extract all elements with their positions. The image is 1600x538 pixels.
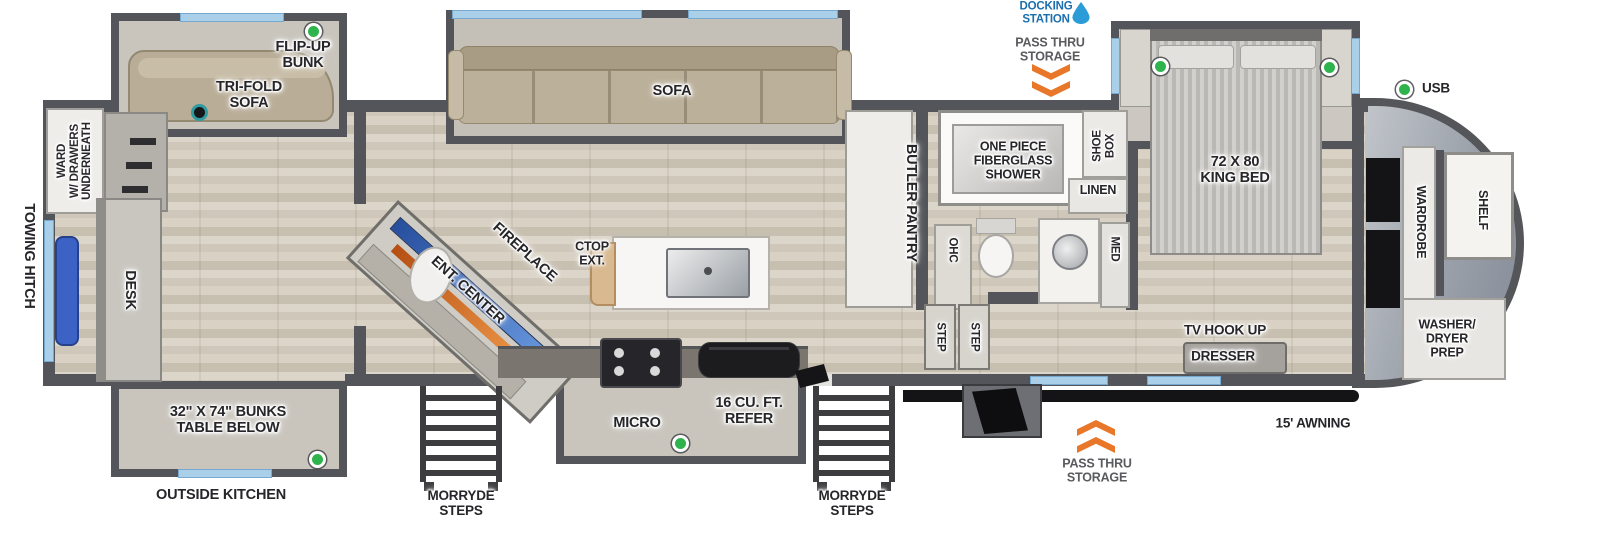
label-linen: LINEN (1080, 184, 1117, 198)
green-indicator-dot (305, 23, 322, 40)
window-strip (452, 10, 642, 19)
label-ctop-ext: CTOP EXT. (575, 240, 609, 268)
nightstand (1120, 29, 1152, 107)
label-usb: USB (1422, 82, 1450, 97)
label-awning: 15' AWNING (1276, 417, 1351, 432)
label-refer: 16 CU. FT. REFER (715, 396, 782, 428)
label-outside-kitchen: OUTSIDE KITCHEN (156, 488, 286, 504)
label-king-bed: 72 X 80 KING BED (1200, 155, 1269, 187)
label-dresser: DRESSER (1191, 350, 1255, 365)
burner (650, 366, 660, 376)
bath-sink (1052, 234, 1088, 270)
label-flip-up-bunk: FLIP-UP BUNK (276, 40, 331, 72)
wardrobe-opening (1366, 158, 1400, 222)
label-pass-thru-top: PASS THRU STORAGE (1015, 36, 1085, 64)
sofa-armrest (448, 50, 464, 120)
burner (650, 348, 660, 358)
shelf-slot (122, 186, 148, 193)
label-towing-hitch: TOWING HITCH (20, 203, 36, 308)
sofa-seat (458, 70, 840, 124)
label-washer-dryer-prep: WASHER/ DRYER PREP (1419, 318, 1476, 359)
window-strip (1147, 376, 1221, 385)
label-shelf: SHELF (1475, 190, 1489, 230)
label-shower: ONE PIECE FIBERGLASS SHOWER (974, 140, 1053, 181)
morryde-steps-ladder-right (813, 386, 895, 482)
label-pass-thru-bottom: PASS THRU STORAGE (1062, 457, 1132, 485)
desk-chair (55, 236, 79, 346)
burner (614, 348, 624, 358)
rv-floorplan-diagram: TOWING HITCH WARD W/ DRAWERS UNDERNEATH … (0, 0, 1600, 538)
label-docking-station: DOCKING STATION (1020, 0, 1073, 25)
wall-closet-divider (1436, 150, 1444, 296)
pillow (1240, 45, 1316, 69)
wall-rear-room-divider (354, 100, 366, 204)
sofa-back (458, 46, 840, 70)
label-shoe-box: SHOE BOX (1091, 130, 1116, 162)
pillow (1158, 45, 1234, 69)
pass-thru-chevron-down (1032, 64, 1070, 80)
burner (614, 366, 624, 376)
label-desk: DESK (121, 270, 137, 310)
wall-bath-bottom (916, 292, 926, 304)
window-strip (178, 469, 272, 478)
wardrobe-opening (1366, 230, 1400, 308)
label-micro: MICRO (613, 416, 660, 432)
pass-thru-chevron-up (1077, 420, 1115, 436)
label-wardrobe: WARDROBE (1413, 186, 1427, 259)
label-butler-pantry: BUTLER PANTRY (902, 144, 918, 262)
window-strip (44, 220, 54, 362)
green-indicator-dot (1321, 59, 1338, 76)
window-strip (180, 13, 284, 22)
green-indicator-dot (672, 435, 689, 452)
usb-indicator-dot (1396, 81, 1413, 98)
refrigerator-handle (709, 347, 789, 350)
bed-headboard (1150, 29, 1322, 41)
label-morryde-steps-right: MORRYDE STEPS (818, 489, 885, 519)
label-tv-hook-up: TV HOOK UP (1184, 324, 1266, 339)
window-strip (1351, 38, 1360, 94)
label-tri-fold-sofa: TRI-FOLD SOFA (216, 80, 282, 112)
toilet-tank (976, 218, 1016, 234)
pass-thru-chevron-down (1032, 81, 1070, 97)
window-strip (1111, 38, 1120, 94)
sink-faucet (704, 267, 712, 275)
label-sofa: SOFA (653, 84, 692, 100)
table-mount (191, 104, 208, 121)
label-step-a: STEP (934, 322, 947, 351)
shelf-slot (130, 138, 156, 145)
label-step-b: STEP (968, 322, 981, 351)
label-med: MED (1108, 237, 1121, 262)
morryde-steps-ladder-left (420, 386, 502, 482)
label-bunks: 32" X 74" BUNKS TABLE BELOW (170, 405, 286, 437)
label-morryde-steps-left: MORRYDE STEPS (427, 489, 494, 519)
water-droplet-icon (1072, 2, 1090, 24)
label-ward: WARD W/ DRAWERS UNDERNEATH (56, 122, 94, 200)
shelf-slot (126, 162, 152, 169)
toilet-bowl (978, 234, 1014, 278)
green-indicator-dot (1152, 58, 1169, 75)
range-cooktop (600, 338, 682, 388)
wall-rear-room-divider (354, 326, 366, 386)
pass-thru-chevron-up (1077, 437, 1115, 453)
med-cabinet (1100, 222, 1130, 308)
green-indicator-dot (309, 451, 326, 468)
refrigerator (698, 342, 800, 378)
label-ohc: OHC (946, 238, 959, 263)
window-strip (688, 10, 838, 19)
